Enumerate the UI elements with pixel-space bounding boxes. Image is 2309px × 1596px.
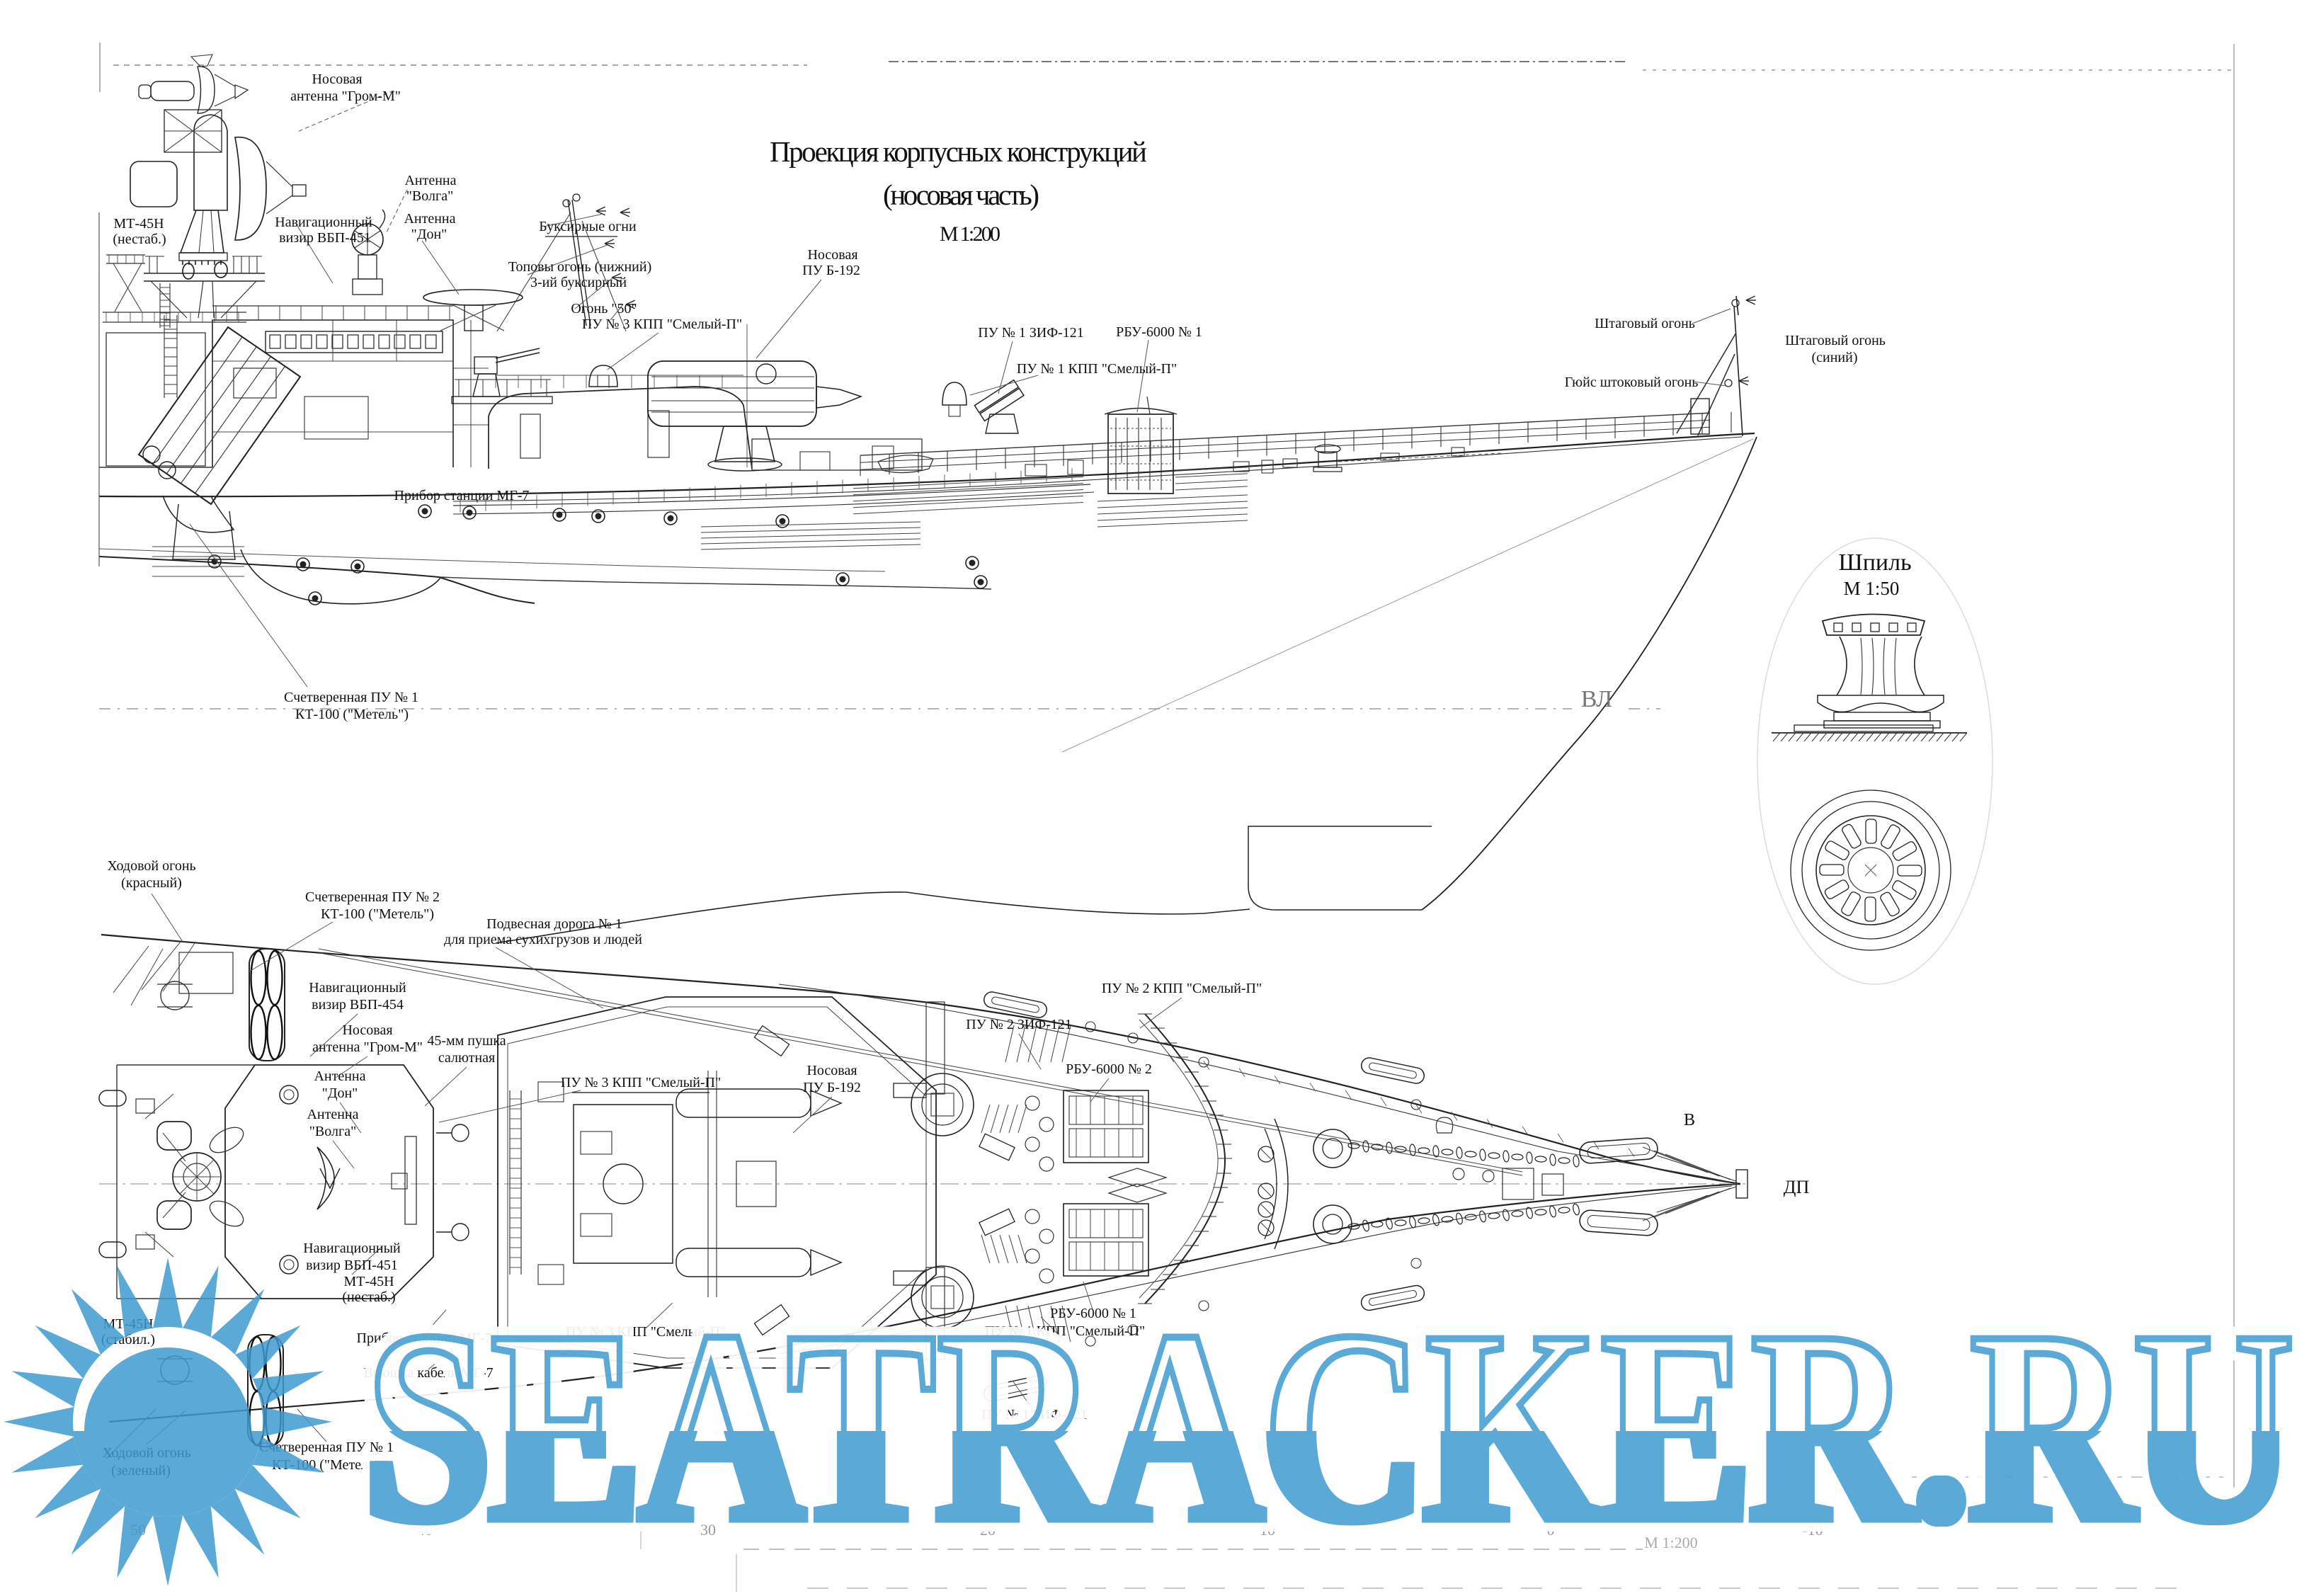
svg-text:ПУ № 2 ЗИФ-121: ПУ № 2 ЗИФ-121: [966, 1017, 1072, 1032]
svg-text:45-мм пушка: 45-мм пушка: [427, 1033, 506, 1049]
svg-text:(нестаб.): (нестаб.): [113, 232, 166, 247]
svg-text:визир ВБП-451: визир ВБП-451: [306, 1258, 398, 1273]
svg-text:Антенна: Антенна: [404, 211, 455, 227]
svg-text:В: В: [1684, 1111, 1695, 1129]
svg-text:визир ВБП-454: визир ВБП-454: [312, 997, 404, 1013]
svg-text:КТ-100 ("Метель"): КТ-100 ("Метель"): [295, 707, 409, 722]
svg-text:Ходовой огонь: Ходовой огонь: [107, 858, 195, 874]
svg-text:"Волга": "Волга": [406, 188, 453, 204]
svg-text:РБУ-6000 № 2: РБУ-6000 № 2: [1066, 1061, 1152, 1077]
svg-text:Носовая: Носовая: [806, 1063, 857, 1078]
svg-text:Антенна: Антенна: [404, 173, 456, 188]
svg-text:"Дон": "Дон": [322, 1085, 358, 1101]
svg-text:визир ВБП-451: визир ВБП-451: [279, 230, 371, 246]
svg-text:РБУ-6000 № 1: РБУ-6000 № 1: [1116, 324, 1202, 340]
svg-text:ПУ № 1 КПП "Смелый-П": ПУ № 1 КПП "Смелый-П": [1017, 361, 1177, 377]
svg-text:(синий): (синий): [1811, 350, 1857, 365]
svg-text:Прибор станции МГ-7: Прибор станции МГ-7: [394, 488, 530, 503]
svg-text:(красный): (красный): [121, 875, 182, 891]
svg-text:Шпиль: Шпиль: [1838, 549, 1911, 576]
svg-text:Топовы огонь (нижний): Топовы огонь (нижний): [508, 259, 651, 275]
svg-text:ПУ № 3 КПП "Смелый-П": ПУ № 3 КПП "Смелый-П": [561, 1075, 721, 1090]
svg-text:ПУ № 1 ЗИФ-121: ПУ № 1 ЗИФ-121: [978, 325, 1084, 341]
svg-text:ДП: ДП: [1784, 1177, 1810, 1197]
svg-text:"Волга": "Волга": [309, 1124, 356, 1139]
svg-text:"Дон": "Дон": [411, 227, 447, 242]
svg-text:Носовая: Носовая: [807, 247, 857, 263]
svg-text:МТ-45Н: МТ-45Н: [113, 216, 164, 232]
svg-text:ВЛ: ВЛ: [1581, 686, 1612, 712]
svg-text:3-ий буксирный: 3-ий буксирный: [530, 275, 627, 290]
svg-text:Навигационный: Навигационный: [303, 1241, 401, 1256]
svg-text:ПУ № 3 КПП "Смелый-П": ПУ № 3 КПП "Смелый-П": [582, 317, 742, 332]
svg-text:Носовая: Носовая: [312, 72, 362, 87]
svg-text:ПУ Б-192: ПУ Б-192: [803, 1080, 861, 1095]
svg-text:Штаговый огонь: Штаговый огонь: [1785, 333, 1886, 348]
svg-text:Гюйс штоковый огонь: Гюйс штоковый огонь: [1565, 375, 1699, 390]
svg-text:М 1:50: М 1:50: [1844, 578, 1900, 599]
svg-text:КТ-100 ("Метель"): КТ-100 ("Метель"): [321, 906, 434, 922]
svg-text:Навигационный: Навигационный: [309, 980, 406, 996]
svg-text:Антенна: Антенна: [307, 1107, 358, 1122]
svg-text:Подвесная дорога № 1: Подвесная дорога № 1: [486, 916, 622, 932]
svg-text:Счетверенная ПУ № 1: Счетверенная ПУ № 1: [284, 690, 418, 705]
svg-text:антенна "Гром-М": антенна "Гром-М": [312, 1039, 423, 1055]
svg-text:(носовая часть): (носовая часть): [883, 178, 1039, 211]
svg-text:Антенна: Антенна: [314, 1068, 365, 1084]
svg-text:салютная: салютная: [438, 1050, 495, 1066]
svg-text:ПУ № 2 КПП "Смелый-П": ПУ № 2 КПП "Смелый-П": [1102, 981, 1262, 996]
svg-text:М 1:200: М 1:200: [940, 222, 1000, 246]
svg-text:Носовая: Носовая: [342, 1022, 392, 1038]
svg-text:Огонь "50": Огонь "50": [571, 301, 637, 317]
svg-text:Штаговый огонь: Штаговый огонь: [1595, 316, 1695, 331]
svg-text:Навигационный: Навигационный: [275, 215, 372, 230]
svg-text:Счетверенная ПУ № 2: Счетверенная ПУ № 2: [305, 889, 440, 905]
svg-text:ПУ Б-192: ПУ Б-192: [802, 263, 860, 278]
svg-text:для приема сухихгрузов и людей: для приема сухихгрузов и людей: [444, 932, 642, 947]
svg-text:антенна "Гром-М": антенна "Гром-М": [290, 89, 401, 104]
svg-text:Проекция корпусных конструкций: Проекция корпусных конструкций: [770, 135, 1147, 168]
svg-text:Буксирные огни: Буксирные огни: [539, 219, 637, 234]
